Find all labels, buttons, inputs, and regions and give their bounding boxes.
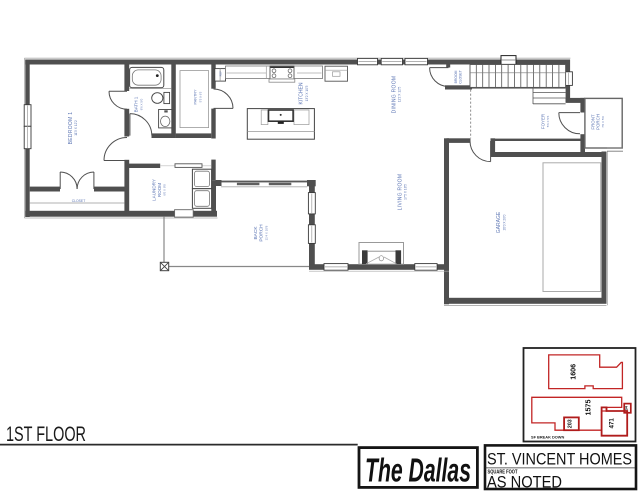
- svg-text:11'4 X 10'8: 11'4 X 10'8: [264, 225, 268, 240]
- svg-text:BATH 1: BATH 1: [134, 96, 139, 112]
- svg-text:PORCH: PORCH: [596, 114, 601, 130]
- svg-text:1606: 1606: [568, 364, 577, 380]
- svg-text:BEDROOM 1: BEDROOM 1: [68, 112, 74, 145]
- svg-text:203: 203: [567, 419, 573, 428]
- svg-text:1ST FLOOR: 1ST FLOOR: [6, 422, 86, 446]
- svg-text:GARAGE: GARAGE: [496, 211, 502, 233]
- svg-text:CLOSET: CLOSET: [459, 70, 463, 84]
- svg-text:ST. VINCENT HOMES: ST. VINCENT HOMES: [487, 451, 632, 469]
- svg-text:20'0 X 20'0: 20'0 X 20'0: [503, 214, 507, 230]
- svg-text:LAUNDRY: LAUNDRY: [152, 179, 157, 201]
- svg-text:ROOM: ROOM: [157, 183, 162, 197]
- svg-text:7'0 X 5'0: 7'0 X 5'0: [601, 116, 605, 128]
- svg-text:SF BREAK DOWN: SF BREAK DOWN: [531, 435, 564, 440]
- svg-text:CLOSET: CLOSET: [72, 199, 86, 203]
- svg-text:8'6 X 5'0: 8'6 X 5'0: [140, 98, 144, 110]
- svg-text:13'2 X 10'5: 13'2 X 10'5: [305, 85, 309, 101]
- svg-text:BACK: BACK: [253, 226, 259, 240]
- svg-text:6'0 X 9'0: 6'0 X 9'0: [162, 184, 166, 196]
- svg-text:PANTRY: PANTRY: [194, 89, 198, 105]
- svg-text:BROOM: BROOM: [454, 70, 458, 83]
- svg-text:AS NOTED: AS NOTED: [487, 473, 562, 491]
- svg-text:KITCHEN: KITCHEN: [299, 82, 305, 104]
- svg-text:FOYER: FOYER: [541, 114, 546, 129]
- svg-text:5'6 X 5'6: 5'6 X 5'6: [546, 115, 550, 127]
- svg-text:17'5 X 18'5: 17'5 X 18'5: [404, 184, 408, 200]
- svg-text:471: 471: [609, 418, 616, 429]
- svg-text:5'5 X 6'5: 5'5 X 6'5: [199, 91, 203, 102]
- svg-text:The Dallas: The Dallas: [365, 452, 471, 489]
- svg-text:11'2 X 12'5: 11'2 X 12'5: [398, 87, 402, 103]
- svg-text:REF: REF: [219, 71, 223, 77]
- svg-text:11'5 X 12'2: 11'5 X 12'2: [74, 120, 78, 136]
- svg-text:1575: 1575: [583, 400, 592, 416]
